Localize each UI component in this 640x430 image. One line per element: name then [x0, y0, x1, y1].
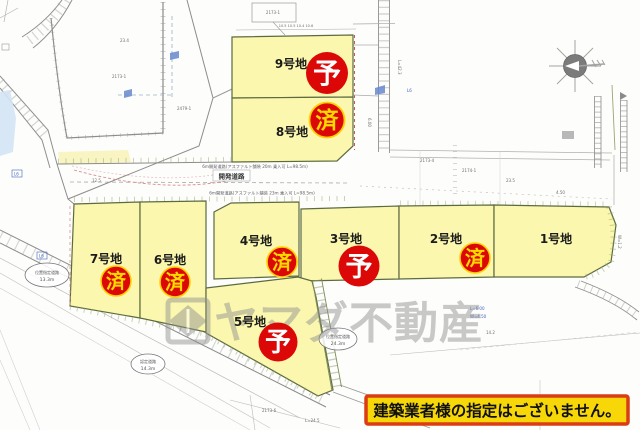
parcel-number: 2173-1 [112, 74, 127, 79]
watermark: ヤマダ不動産 [168, 298, 484, 349]
svg-text:済: 済 [165, 270, 186, 294]
parcel-number: 2479-1 [177, 106, 192, 111]
plot-8-status-badge: 済 [310, 103, 345, 138]
balloon-road-name: 位置指定道路 [35, 269, 59, 275]
dimension-callout: 2173-1 10.5 10.5 10.4 10.6 [236, 3, 356, 35]
svg-text:予: 予 [265, 328, 291, 358]
plot-5-label: 5号地 [234, 314, 266, 329]
dimension-row: 10.5 10.5 10.4 10.6 [279, 24, 314, 28]
survey-flag-icon [170, 51, 179, 60]
land-plot-map: 2173-1 10.5 10.5 10.4 10.6 位置指定道路 13.3m … [0, 0, 640, 430]
dimension-text: 4.50 [556, 190, 565, 195]
benchmark-label: L6 [14, 172, 19, 177]
cadastral-lines [0, 0, 247, 199]
plot-9-status-badge: 予 [306, 52, 348, 94]
dimension-text: 12.5 [92, 178, 101, 183]
dimension-text: 14.2 [486, 330, 495, 335]
balloon-road-width: 13.3m [40, 277, 55, 283]
road-note-bottom: 6m開発道路(アスファルト舗装 23m 乗入可 L=98.5m) [209, 190, 315, 197]
plot-3-status-badge: 予 [339, 246, 380, 287]
plot-7-label: 7号地 [90, 251, 122, 266]
dimension-text: L=42.3 [397, 60, 402, 75]
parcel-number: 2173-4 [420, 158, 435, 163]
plot-6-status-badge: 済 [160, 267, 190, 297]
scale-bars [562, 92, 627, 172]
plot-2-label: 2号地 [430, 231, 462, 246]
svg-text:済: 済 [272, 250, 293, 274]
svg-text:予: 予 [346, 252, 373, 283]
plot-7-status-badge: 済 [101, 266, 131, 296]
dimension-text: 23.5 [506, 178, 515, 183]
svg-text:済: 済 [106, 269, 127, 293]
dimension-text: 23.4 [120, 38, 129, 43]
road-label-group: 開発道路 6m開発道路(アスファルト舗装 20m 乗入可 L=98.5m) 6m… [202, 163, 315, 197]
svg-text:予: 予 [313, 57, 341, 90]
parcel-number: 2173-6 [262, 408, 277, 413]
road-name-label: 開発道路 [219, 172, 246, 181]
dimension-text: L=24.5 [305, 418, 320, 423]
plot-4-label: 4号地 [240, 233, 272, 248]
plot-4-status-badge: 済 [267, 247, 297, 277]
north-side-road [353, 0, 395, 153]
benchmark-label: L6 [407, 88, 412, 93]
water-area-shading [0, 90, 16, 156]
dimension-text: 6.00 [367, 118, 372, 127]
parcel-number: 2173-1 [266, 10, 281, 15]
parcel-number: 2174-1 [462, 168, 477, 173]
plot-6-label: 6号地 [154, 252, 186, 267]
plot-5-status-badge: 予 [259, 323, 298, 362]
dimension-text: W=1.2 [617, 235, 622, 249]
road-edge-highlight [58, 150, 131, 165]
plot-2-status-badge: 済 [460, 243, 490, 273]
plot-3-label: 3号地 [330, 231, 362, 246]
plot-1-label: 1号地 [540, 231, 572, 246]
balloon-road-name: 認定道路 [140, 358, 156, 364]
plot-9-label: 9号地 [275, 56, 307, 71]
svg-text:済: 済 [465, 246, 486, 270]
notice-banner: 建築業者様の指定はございません。 [366, 396, 628, 424]
benchmark-label: L6 [39, 254, 44, 259]
survey-flag-icon [124, 89, 132, 98]
notice-text: 建築業者様の指定はございません。 [373, 401, 621, 420]
svg-text:済: 済 [316, 107, 340, 134]
compass-icon [549, 40, 605, 92]
survey-map-canvas: 2173-1 10.5 10.5 10.4 10.6 位置指定道路 13.3m … [0, 0, 640, 430]
plot-8-label: 8号地 [276, 124, 308, 139]
survey-flag-icon [375, 85, 385, 95]
balloon-road-width: 14.3m [141, 366, 156, 372]
road-note-top: 6m開発道路(アスファルト舗装 20m 乗入可 L=98.5m) [202, 163, 308, 170]
